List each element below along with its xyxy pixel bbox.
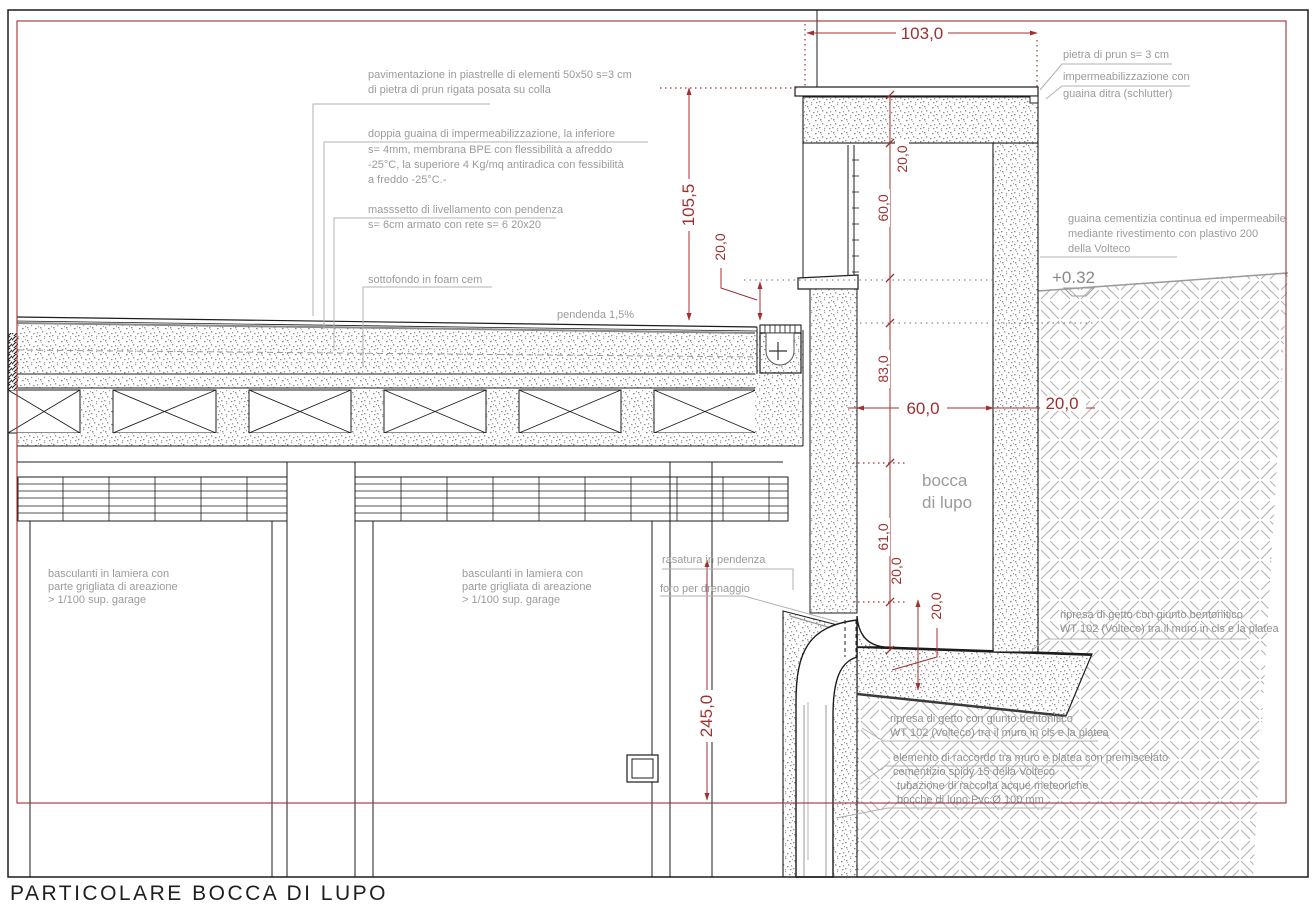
sill-stone <box>798 275 858 289</box>
note-rasatura: rasatura in pendenza <box>662 554 766 566</box>
dim-20-pit: 20,0 <box>888 557 904 584</box>
level-quota: +0.32 <box>1052 268 1095 287</box>
drawing-title: PARTICOLARE BOCCA DI LUPO <box>10 882 388 905</box>
note-tubazione-2: bocche di lupo Pvc Ø 100 mm <box>897 794 1044 806</box>
note-basculanti-right-1: basculanti in lamiera con <box>462 568 583 580</box>
note-tubazione-1: tubazione di raccolta acque meteoriche <box>897 780 1088 792</box>
note-ripresa-b-2: WT 102 (Volteco) tra il muro in cls e la… <box>890 727 1110 739</box>
note-guaina-3: -25°C, la superiore 4 Kg/mq antiradica c… <box>368 159 625 171</box>
note-guaina-2: s= 4mm, membrana BPE con flessibilità a … <box>368 144 612 156</box>
drawing-canvas: 103,0 105,5 20,0 20,0 60,0 83,0 61,0 20,… <box>0 0 1316 910</box>
note-basculanti-left-1: basculanti in lamiera con <box>48 568 169 580</box>
note-foro: foro per drenaggio <box>660 583 750 595</box>
note-elemento-2: cementizio spidy 15 della Volteco <box>893 766 1055 778</box>
label-bocca-2: di lupo <box>922 493 972 512</box>
dim-61: 61,0 <box>875 523 891 550</box>
outer-wall <box>993 143 1038 652</box>
dim-20-slab: 20,0 <box>928 592 944 619</box>
note-massetto-1: masssetto di livellamento con pendenza <box>368 204 564 216</box>
dim-20-wall: 20,0 <box>1045 394 1078 413</box>
label-bocca-1: bocca <box>922 471 968 490</box>
note-ripresa-b-1: ripresa di getto con giunto bentonitico <box>890 713 1073 725</box>
note-guaina-cementizia-1: guaina cementizia continua ed impermeabi… <box>1068 213 1286 225</box>
floor-assembly <box>8 317 803 462</box>
cap-stone <box>795 87 1038 96</box>
dim-105-5: 105,5 <box>679 184 698 227</box>
note-pavimentazione-1: pavimentazione in piastrelle di elementi… <box>368 69 632 81</box>
note-pavimentazione-2: di pietra di prun rigata posata su colla <box>368 84 552 96</box>
drain-channel <box>760 325 801 373</box>
dim-60-width: 60,0 <box>906 399 939 418</box>
note-pendenza: pendenda 1,5% <box>557 309 634 321</box>
note-basculanti-right-3: > 1/100 sup. garage <box>462 594 560 606</box>
drawing-sheet: 103,0 105,5 20,0 20,0 60,0 83,0 61,0 20,… <box>0 0 1316 910</box>
note-basculanti-left-2: parte grigliata di areazione <box>48 581 178 593</box>
dim-20-top: 20,0 <box>894 145 910 172</box>
note-basculanti-right-2: parte grigliata di areazione <box>462 581 592 593</box>
note-pietra: pietra di prun s= 3 cm <box>1063 49 1169 61</box>
note-guaina-cementizia-3: della Volteco <box>1068 243 1130 255</box>
note-guaina-cementizia-2: mediante rivestimento con plastivo 200 <box>1068 228 1258 240</box>
dim-103: 103,0 <box>901 24 944 43</box>
dim-60-vent: 60,0 <box>875 194 891 221</box>
vent-grate <box>848 145 859 277</box>
note-sottofondo: sottofondo in foam cem <box>368 274 482 286</box>
dim-245: 245,0 <box>697 695 716 738</box>
dim-20-pavement: 20,0 <box>712 233 728 260</box>
note-impermeabilizzazione-1: impermeabilizzazione con <box>1063 71 1190 83</box>
note-basculanti-left-3: > 1/100 sup. garage <box>48 594 146 606</box>
note-ripresa-a-2: WT 102 (Volteco) tra il muro in cls e la… <box>1060 623 1280 635</box>
note-guaina-1: doppia guaina di impermeabilizzazione, l… <box>368 128 615 140</box>
note-impermeabilizzazione-2: guaina ditra (schlutter) <box>1063 88 1172 100</box>
note-ripresa-a-1: ripresa di getto con giunto bentonitico <box>1060 609 1243 621</box>
note-massetto-2: s= 6cm armato con rete s= 6 20x20 <box>368 219 541 231</box>
garage-doors <box>18 462 788 877</box>
note-guaina-4: a freddo -25°C.- <box>368 174 447 186</box>
note-elemento-1: elemento di raccordo tra muro e platea c… <box>893 752 1168 764</box>
dim-83: 83,0 <box>875 355 891 382</box>
